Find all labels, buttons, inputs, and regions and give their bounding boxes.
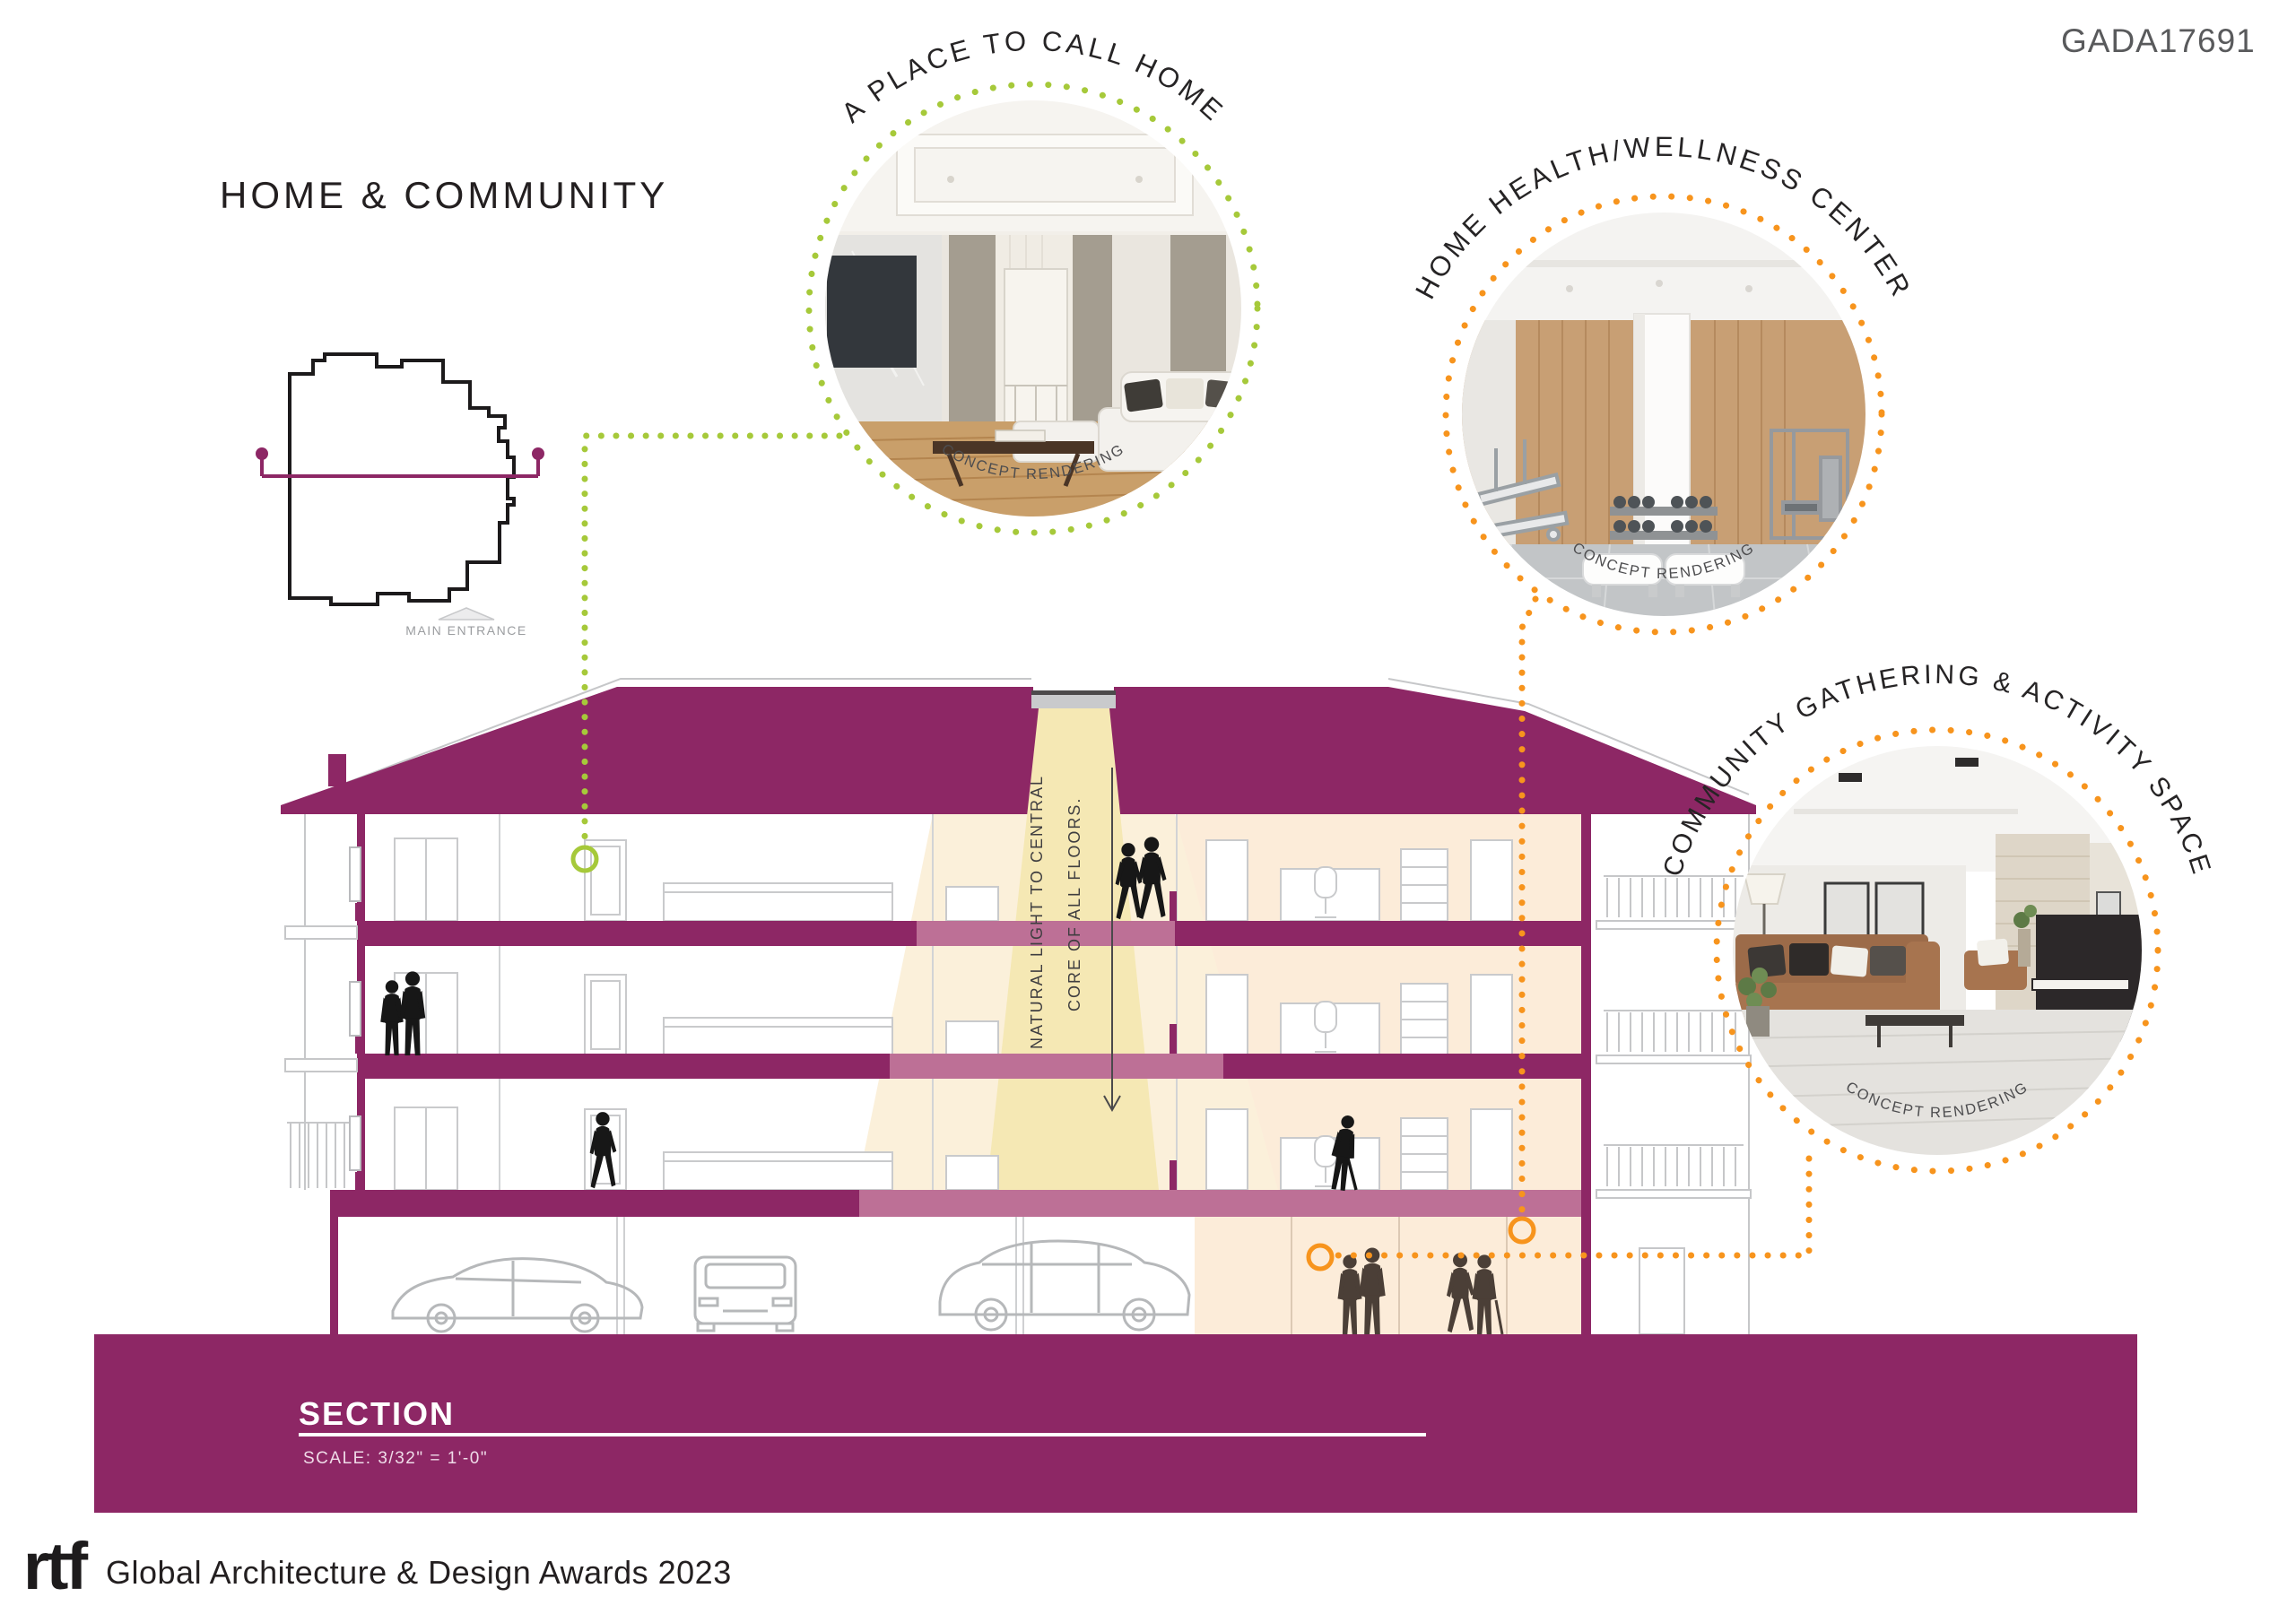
annotation-line-2: CORE OF ALL FLOORS.	[1065, 797, 1083, 1011]
board-canvas: GADA17691 HOME & COMMUNITY MAIN ENTRANCE	[0, 0, 2296, 1623]
annotation-line-1: NATURAL LIGHT TO CENTRAL	[1028, 775, 1046, 1049]
ground-band: SECTION SCALE: 3/32" = 1'-0"	[94, 1334, 2137, 1513]
footer-text: Global Architecture & Design Awards 2023	[106, 1554, 732, 1591]
section-marker-dot-left	[256, 447, 268, 460]
plan-entrance-label: MAIN ENTRANCE	[405, 623, 526, 638]
skylight-glass	[1031, 695, 1116, 708]
community-room	[1195, 1217, 1581, 1334]
roof-chimney	[328, 754, 346, 786]
section-marker-dot-right	[532, 447, 544, 460]
skylight-frame	[1031, 690, 1116, 695]
section-scale: SCALE: 3/32" = 1'-0"	[303, 1449, 488, 1468]
community-photo	[1733, 746, 2142, 1155]
section-underline	[299, 1433, 1426, 1436]
section-title: SECTION	[299, 1395, 455, 1432]
wellness-photo	[1462, 213, 1865, 616]
rtf-logo-icon: rtf	[23, 1529, 88, 1603]
page-title: HOME & COMMUNITY	[220, 174, 668, 216]
presentation-board: GADA17691 HOME & COMMUNITY MAIN ENTRANCE	[0, 0, 2296, 1623]
board-code: GADA17691	[2061, 22, 2256, 59]
